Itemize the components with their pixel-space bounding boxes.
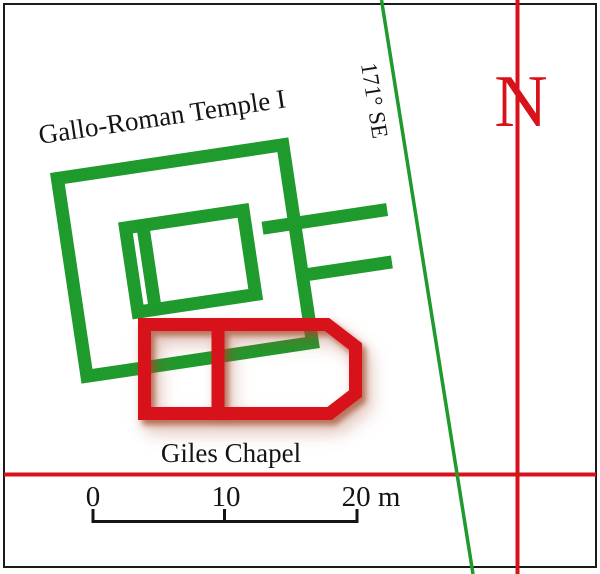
temple-label: Gallo-Roman Temple I [36,83,287,150]
site-plan: Gallo-Roman Temple I Giles Chapel 171° S… [0,0,600,574]
chapel-label: Giles Chapel [161,438,301,468]
north-indicator: N [494,61,547,143]
temple-ambulatory-wall [57,145,312,377]
bearing-label: 171° SE [356,61,393,140]
site-plan-figure: Gallo-Roman Temple I Giles Chapel 171° S… [0,0,600,574]
scale-label-20m: 20 m [342,481,401,513]
labels: Gallo-Roman Temple I Giles Chapel 171° S… [36,61,400,513]
temple-east-wall-upper [262,210,387,229]
scale-label-10: 10 [212,481,241,513]
scale-label-0: 0 [86,481,101,513]
temple-inner-wall [143,226,155,309]
temple-east-wall-lower [300,262,392,276]
